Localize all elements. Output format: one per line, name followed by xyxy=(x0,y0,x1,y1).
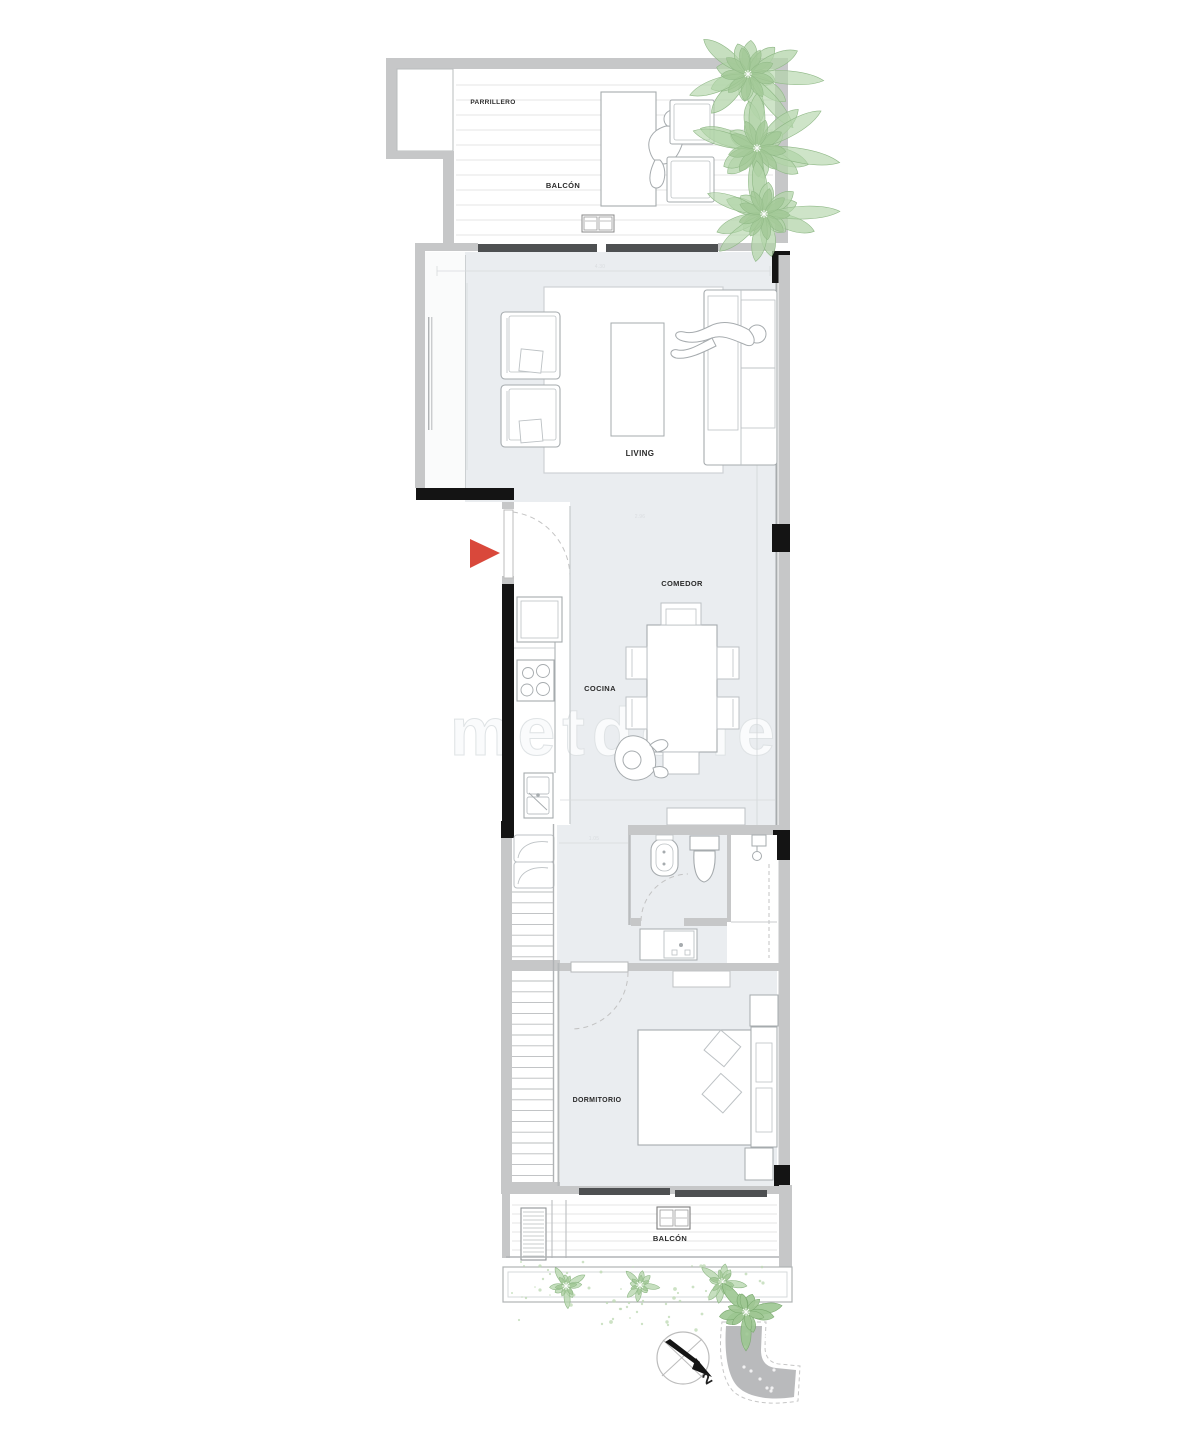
svg-text:BALCÓN: BALCÓN xyxy=(653,1234,687,1243)
svg-text:2.96: 2.96 xyxy=(635,514,646,520)
svg-text:COMEDOR: COMEDOR xyxy=(661,579,703,588)
svg-text:BALCÓN: BALCÓN xyxy=(546,181,580,190)
svg-text:DORMITORIO: DORMITORIO xyxy=(573,1097,622,1104)
svg-text:COCINA: COCINA xyxy=(584,684,616,693)
svg-text:LIVING: LIVING xyxy=(626,449,655,458)
svg-text:PARRILLERO: PARRILLERO xyxy=(470,99,515,106)
svg-text:1.05: 1.05 xyxy=(589,836,600,842)
svg-text:4.30: 4.30 xyxy=(595,264,606,270)
